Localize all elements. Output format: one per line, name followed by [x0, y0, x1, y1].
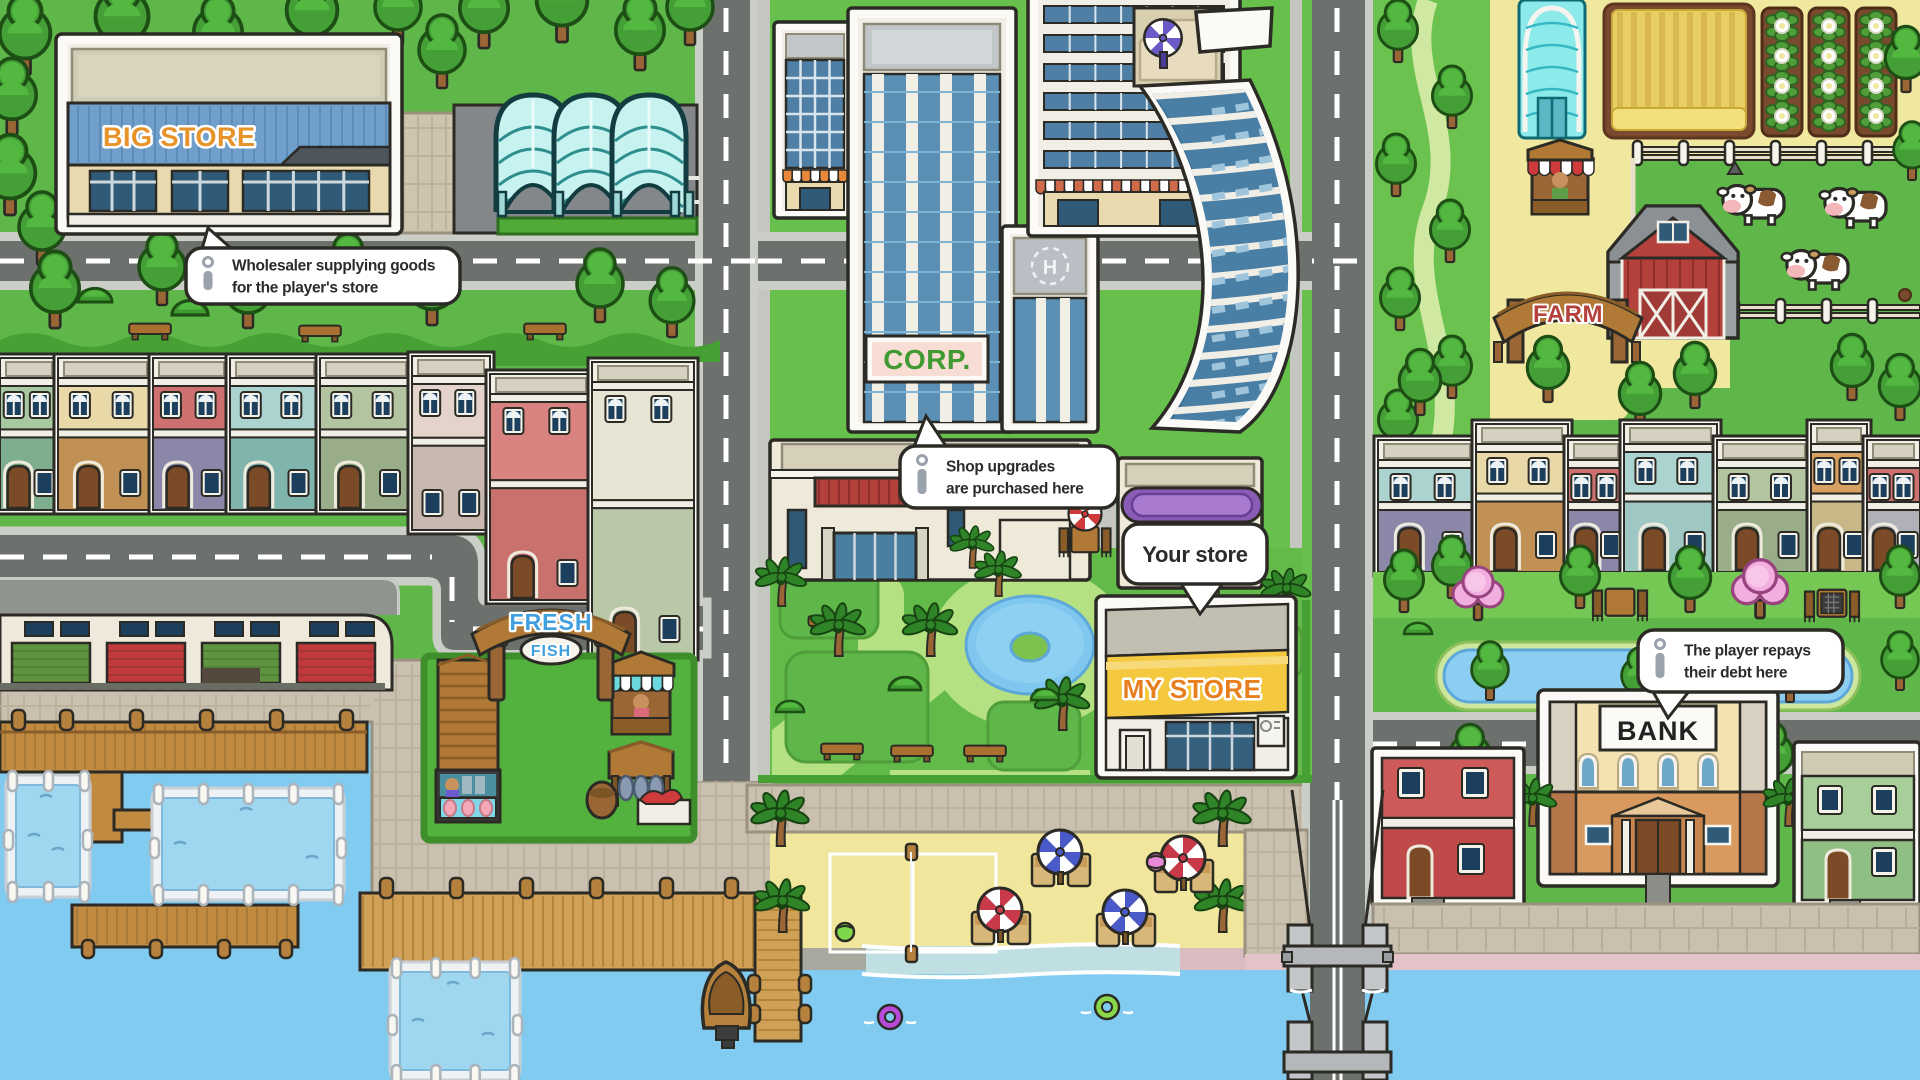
svg-text:FARM: FARM: [1533, 301, 1603, 328]
svg-text:The player repays: The player repays: [1684, 643, 1811, 660]
svg-text:MY STORE: MY STORE: [1123, 674, 1262, 704]
svg-text:Shop upgrades: Shop upgrades: [946, 459, 1055, 476]
svg-text:are purchased here: are purchased here: [946, 481, 1084, 498]
svg-text:BIG STORE: BIG STORE: [103, 122, 256, 152]
svg-text:CORP.: CORP.: [883, 344, 971, 375]
svg-text:H: H: [1043, 257, 1057, 279]
svg-text:their debt here: their debt here: [1684, 665, 1788, 682]
svg-text:BANK: BANK: [1617, 716, 1699, 746]
svg-text:FRESH: FRESH: [510, 609, 593, 635]
svg-text:FISH: FISH: [531, 643, 571, 660]
svg-text:for the player's store: for the player's store: [232, 280, 379, 297]
svg-text:Your store: Your store: [1142, 542, 1247, 567]
svg-text:Wholesaler supplying goods: Wholesaler supplying goods: [232, 258, 435, 275]
